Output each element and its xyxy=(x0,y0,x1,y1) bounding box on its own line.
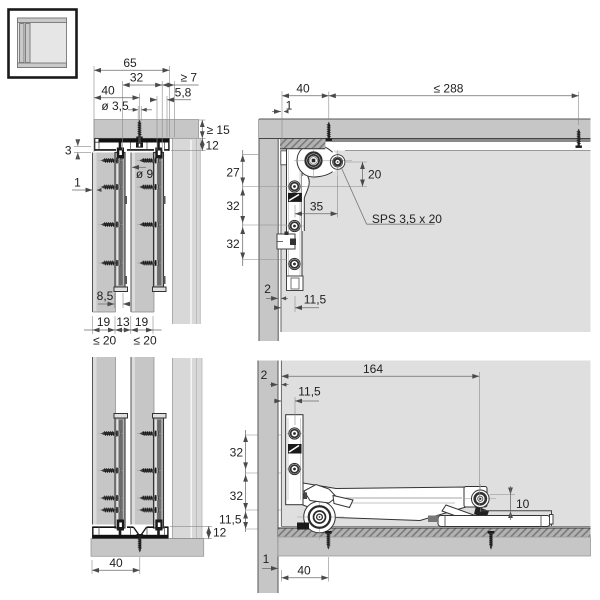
svg-text:10: 10 xyxy=(516,497,530,511)
svg-text:40: 40 xyxy=(296,82,310,96)
svg-text:8,5: 8,5 xyxy=(97,289,114,303)
svg-text:19: 19 xyxy=(135,315,149,329)
svg-text:11,5: 11,5 xyxy=(304,293,327,307)
svg-text:2: 2 xyxy=(264,282,271,296)
svg-text:1: 1 xyxy=(74,176,81,190)
svg-text:2: 2 xyxy=(261,368,268,382)
svg-text:27: 27 xyxy=(226,165,240,179)
svg-text:65: 65 xyxy=(123,56,137,70)
svg-text:32: 32 xyxy=(130,71,144,85)
svg-text:19: 19 xyxy=(97,315,111,329)
svg-text:40: 40 xyxy=(101,83,115,97)
svg-text:≤ 20: ≤ 20 xyxy=(133,333,157,347)
svg-text:5,8: 5,8 xyxy=(175,86,192,100)
svg-text:40: 40 xyxy=(109,556,123,570)
svg-text:1: 1 xyxy=(263,552,270,566)
svg-text:≤ 288: ≤ 288 xyxy=(434,81,464,95)
svg-text:≤ 20: ≤ 20 xyxy=(93,333,117,347)
svg-text:11,5: 11,5 xyxy=(298,384,321,398)
svg-text:164: 164 xyxy=(363,362,383,376)
svg-text:ø 9: ø 9 xyxy=(136,167,154,181)
svg-text:35: 35 xyxy=(310,199,324,213)
svg-text:32: 32 xyxy=(230,489,244,503)
svg-text:≥ 15: ≥ 15 xyxy=(207,123,231,137)
svg-text:32: 32 xyxy=(226,237,240,251)
svg-text:32: 32 xyxy=(226,199,240,213)
svg-text:1: 1 xyxy=(286,99,293,113)
svg-text:≥ 7: ≥ 7 xyxy=(181,71,198,85)
svg-text:12: 12 xyxy=(206,138,220,152)
svg-text:32: 32 xyxy=(230,445,244,459)
svg-text:12: 12 xyxy=(213,526,227,540)
svg-text:3: 3 xyxy=(65,143,72,157)
svg-text:13: 13 xyxy=(116,315,130,329)
svg-text:11,5: 11,5 xyxy=(219,512,242,526)
svg-text:40: 40 xyxy=(297,564,311,578)
svg-text:20: 20 xyxy=(368,168,382,182)
svg-text:SPS 3,5 x 20: SPS 3,5 x 20 xyxy=(372,212,442,226)
svg-text:ø 3,5: ø 3,5 xyxy=(101,99,129,113)
